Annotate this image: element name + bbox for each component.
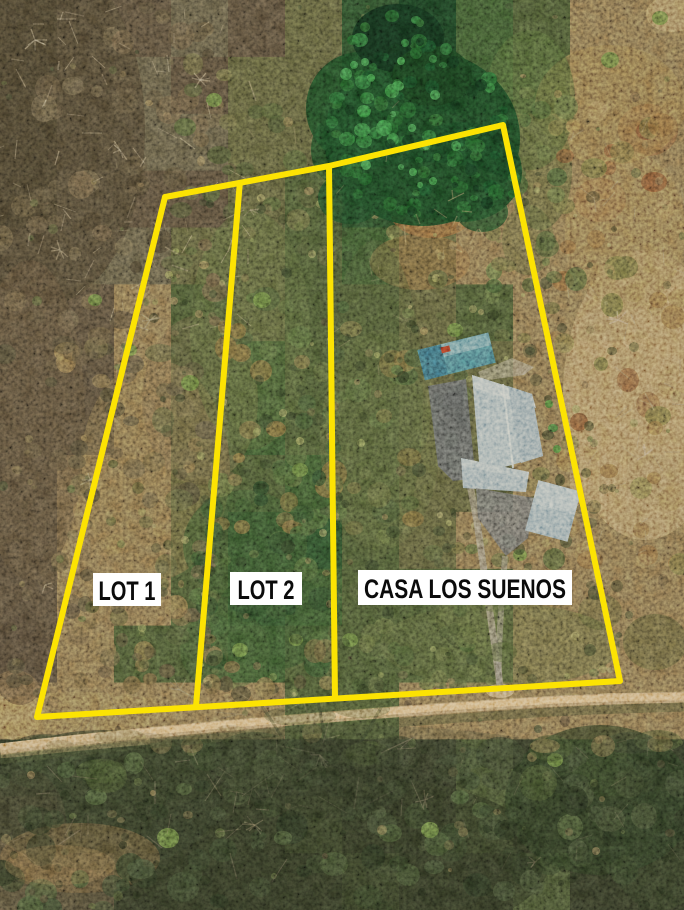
svg-text:LOT 1: LOT 1 <box>99 576 156 606</box>
svg-text:LOT 2: LOT 2 <box>238 575 295 605</box>
svg-text:CASA LOS SUENOS: CASA LOS SUENOS <box>364 574 566 604</box>
